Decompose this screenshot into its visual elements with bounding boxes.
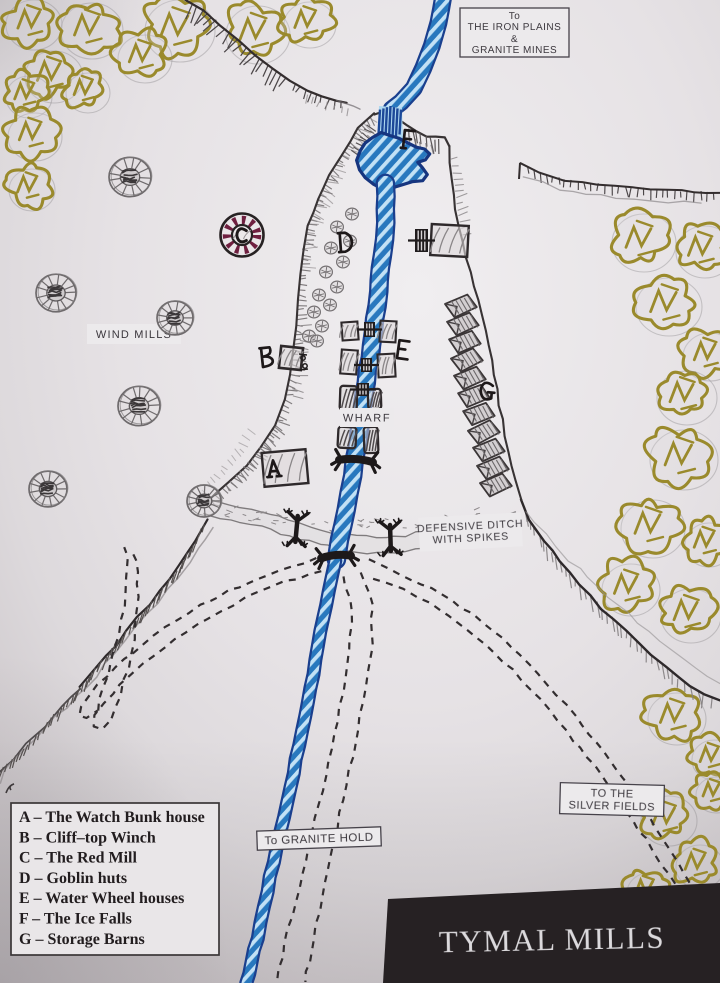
svg-text:A – The Watch Bunk house: A – The Watch Bunk house bbox=[19, 809, 205, 826]
svg-text:SILVER FIELDS: SILVER FIELDS bbox=[568, 799, 655, 813]
svg-text:THE IRON PLAINS: THE IRON PLAINS bbox=[468, 22, 562, 33]
svg-text:F – The Ice Falls: F – The Ice Falls bbox=[19, 911, 132, 928]
svg-text:B – Cliff–top Winch: B – Cliff–top Winch bbox=[19, 829, 156, 846]
svg-text:WIND MILLS: WIND MILLS bbox=[96, 329, 172, 341]
svg-text:E – Water Wheel houses: E – Water Wheel houses bbox=[19, 890, 184, 907]
svg-text:TO THE: TO THE bbox=[591, 788, 634, 801]
svg-text:To: To bbox=[509, 11, 521, 22]
svg-text:G – Storage Barns: G – Storage Barns bbox=[19, 931, 145, 948]
svg-text:C – The Red Mill: C – The Red Mill bbox=[19, 850, 137, 867]
svg-text:WHARF: WHARF bbox=[343, 412, 391, 424]
svg-text:D – Goblin huts: D – Goblin huts bbox=[19, 870, 127, 887]
svg-text:&: & bbox=[511, 34, 518, 45]
svg-text:GRANITE MINES: GRANITE MINES bbox=[472, 45, 557, 56]
svg-text:TYMAL MILLS: TYMAL MILLS bbox=[438, 920, 665, 960]
